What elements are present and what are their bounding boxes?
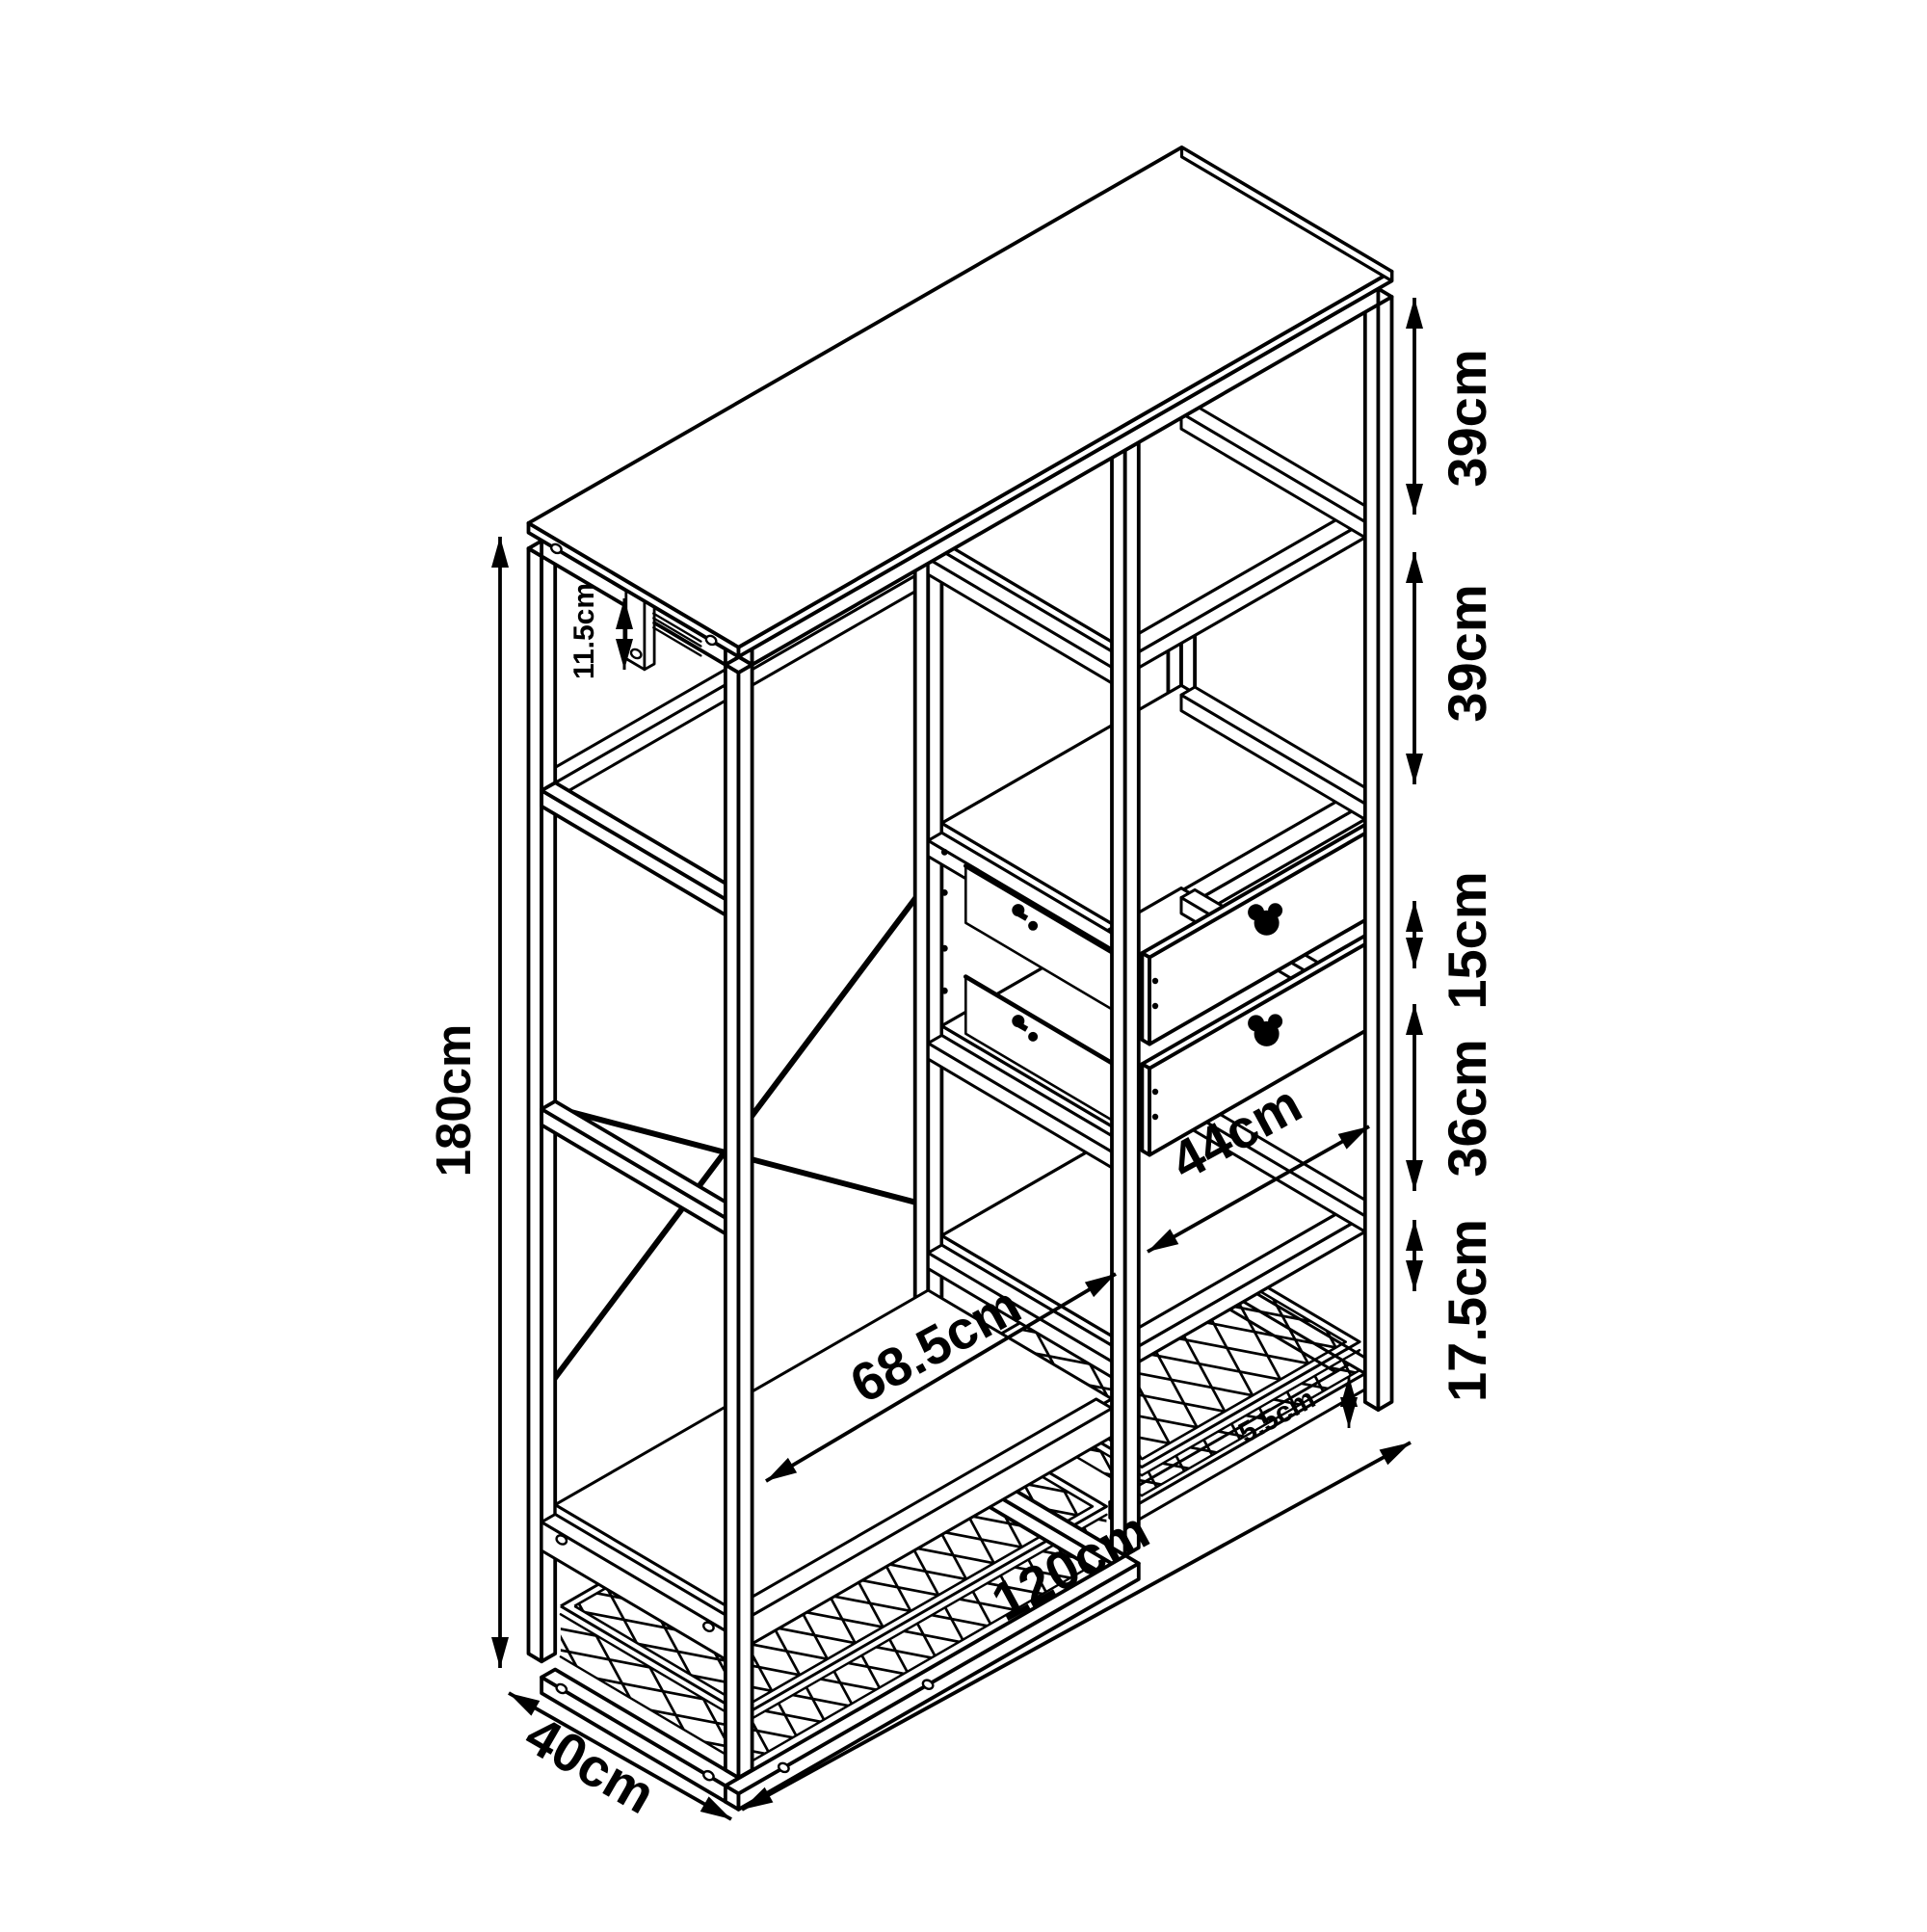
svg-text:15cm: 15cm: [1437, 871, 1497, 1009]
svg-text:17.5cm: 17.5cm: [1437, 1219, 1497, 1402]
svg-text:180cm: 180cm: [426, 1024, 481, 1178]
svg-text:11.5cm: 11.5cm: [568, 583, 600, 679]
svg-text:39cm: 39cm: [1437, 584, 1497, 722]
svg-text:39cm: 39cm: [1437, 349, 1497, 487]
svg-text:36cm: 36cm: [1437, 1039, 1497, 1177]
